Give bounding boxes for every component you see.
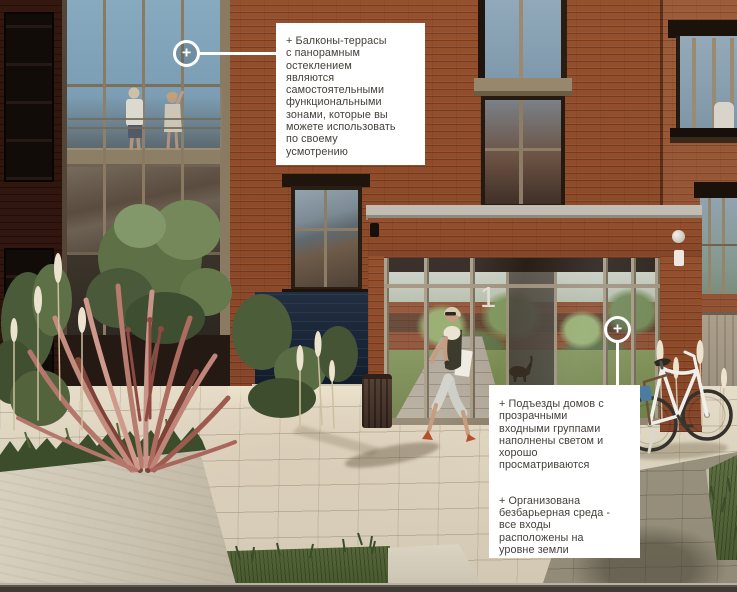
hotspot-marker-balcony[interactable]: + [173,40,200,67]
shrubs-mid [232,294,358,418]
callout-connector-2 [616,341,619,387]
plant-shadows [292,425,380,456]
hotspot-marker-entrance[interactable]: + [604,316,631,343]
person-walking-woman [422,307,476,442]
callout-entrances: + Подъезды домов с прозрачными входными … [489,385,640,558]
plus-icon: + [182,45,191,61]
callout-text: + Организована безбарьерная среда - все … [499,495,634,556]
grass-tufts [236,478,737,562]
plus-icon: + [613,321,622,337]
dog [509,356,532,382]
yard-edge-strip [0,583,737,592]
callout-text: + Балконы-террасы с панорамным остеклени… [286,35,419,158]
architectural-render-scene: 1 [0,0,737,592]
callout-balcony-terraces: + Балконы-террасы с панорамным остеклени… [276,23,425,165]
balcony-railing [67,88,222,148]
callout-text: + Подъезды домов с прозрачными входными … [499,398,634,472]
callout-connector-1 [198,52,277,55]
